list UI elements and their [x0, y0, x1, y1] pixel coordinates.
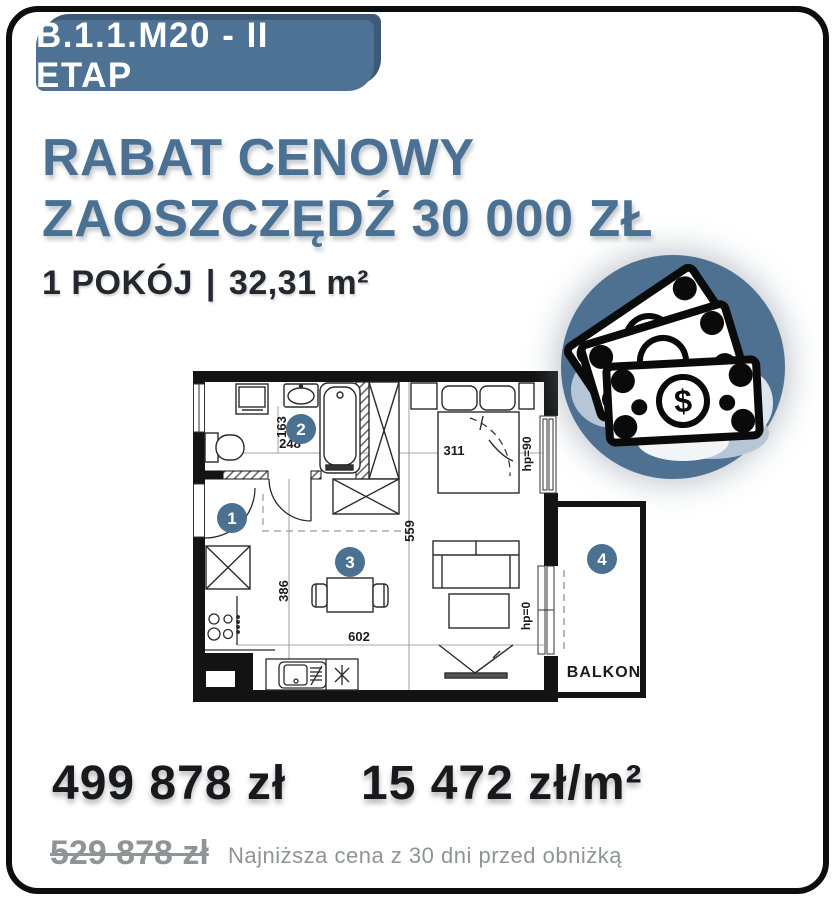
dim-311: 311	[444, 443, 465, 458]
dim-386: 386	[276, 580, 291, 602]
tv	[439, 645, 513, 673]
price-current: 499 878 zł	[52, 756, 286, 811]
toilet-bowl	[216, 435, 244, 460]
chair	[373, 584, 388, 607]
svg-text:2: 2	[296, 420, 305, 439]
wardrobes	[206, 382, 399, 589]
dim-602: 602	[348, 629, 370, 644]
promo-card: B.1.1.M20 - II ETAP RABAT CENOWY ZAOSZCZ…	[6, 6, 829, 894]
money-banknotes-icon: $	[561, 255, 785, 479]
balcony-label: BALKON	[567, 664, 641, 681]
chair	[312, 584, 327, 607]
unit-badge: B.1.1.M20 - II ETAP	[36, 20, 374, 91]
room-marker-3: 3	[335, 547, 365, 577]
bathroom-door	[269, 479, 311, 521]
dining-table	[327, 578, 373, 612]
price-disclaimer: Najniższa cena z 30 dni przed obniżką	[228, 843, 622, 869]
coffee-table	[449, 594, 509, 628]
unit-area: 32,31 m²	[229, 264, 369, 303]
headline-line1: RABAT CENOWY	[42, 128, 653, 189]
svg-text:3: 3	[345, 553, 354, 572]
bed	[411, 383, 534, 493]
headline-line2: ZAOSZCZĘDŹ 30 000 ZŁ	[42, 189, 653, 250]
price-per-m2: 15 472 zł/m²	[361, 756, 642, 811]
svg-text:1: 1	[227, 509, 236, 528]
headline: RABAT CENOWY ZAOSZCZĘDŹ 30 000 ZŁ	[42, 128, 653, 250]
price-previous: 529 878 zł	[50, 834, 209, 873]
room-marker-4: 4	[587, 544, 617, 574]
room-marker-1: 1	[217, 503, 247, 533]
cooktop	[209, 614, 219, 624]
dim-559: 559	[402, 520, 417, 542]
wall-recess	[206, 671, 235, 687]
svg-text:4: 4	[597, 550, 607, 569]
money-icon: $	[561, 255, 785, 479]
dim-hp0: hp=0	[519, 602, 533, 631]
unit-rooms: 1 POKÓJ	[42, 264, 193, 303]
dollar-sign: $	[673, 383, 693, 420]
entry-door-leaf	[194, 484, 205, 537]
unit-badge-label: B.1.1.M20 - II ETAP	[36, 20, 374, 91]
dim-hp90: hp=90	[520, 436, 534, 471]
room-marker-2: 2	[286, 414, 316, 444]
unit-info: 1 POKÓJ | 32,31 m²	[42, 264, 369, 303]
window-hp90	[540, 416, 556, 493]
unit-separator: |	[206, 264, 216, 303]
